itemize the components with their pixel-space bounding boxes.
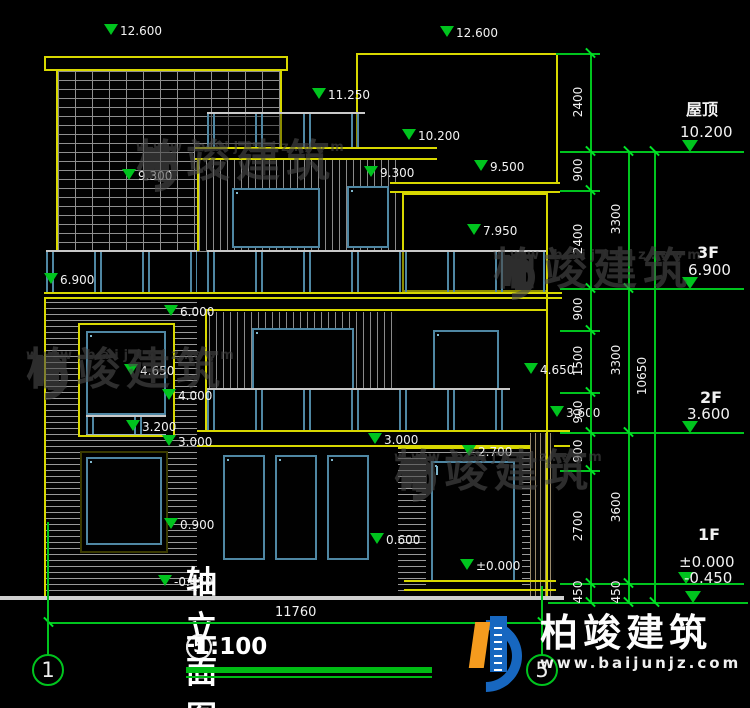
logo-brand-name: 柏竣建筑 (540, 612, 741, 654)
floor-level-triangle-icon (682, 140, 698, 152)
window-handle (90, 336, 92, 337)
dimension-text: 2400 (571, 224, 585, 255)
dimension-text: 450 (609, 581, 623, 604)
title-text: 轴立面图 (186, 557, 218, 708)
right-column (530, 433, 554, 597)
dimension-text: 2700 (571, 511, 585, 542)
window-sash (90, 335, 92, 337)
elevation-value: 3.600 (566, 406, 600, 420)
dimension-tick (623, 578, 634, 589)
1f-middle-window (327, 455, 369, 560)
2f-balcony-railing (207, 388, 510, 431)
dimension-tick (649, 597, 660, 608)
dimension-text: 3600 (609, 492, 623, 523)
floor-level-triangle-icon (678, 572, 694, 584)
floor-level-label: 2F (700, 388, 722, 407)
dimension-tick (585, 185, 596, 196)
floor-slab-3600 (197, 430, 570, 447)
floor-level-value: -0.450 (684, 569, 732, 587)
dimension-text: 3300 (609, 345, 623, 376)
window-panel (227, 459, 229, 461)
1f-middle-window (275, 455, 317, 560)
axis-bubble: 1 (32, 654, 64, 686)
2f-balcony-door (252, 328, 354, 390)
dimension-tick (623, 427, 634, 438)
dimension-text: 900 (571, 298, 585, 321)
dimension-chain-line (590, 53, 592, 602)
window-panel (331, 459, 333, 461)
level-triangle-icon (104, 24, 118, 35)
floor-level-label: 屋顶 (686, 96, 718, 120)
window-handle (437, 335, 439, 336)
dimension-text: 900 (571, 401, 585, 424)
floor-level-triangle-icon (685, 591, 701, 603)
floor-slab-6900 (44, 292, 562, 299)
extension-line (548, 602, 748, 604)
extension-line (560, 330, 600, 332)
extension-line (560, 190, 600, 192)
ground-line (0, 596, 564, 600)
casement-mark (237, 193, 238, 194)
3f-window-single (347, 186, 389, 248)
floor-level-value: 6.900 (688, 261, 731, 279)
dimension-tick (649, 146, 660, 157)
elevation-value: 12.600 (456, 26, 498, 40)
floor-level-label: 1F (698, 525, 720, 544)
2f-left-window (86, 331, 166, 415)
window-sash (351, 190, 353, 192)
1f-middle-window (223, 455, 265, 560)
floor-level-value: ±0.000 (679, 553, 735, 571)
dimension-text: 2400 (571, 87, 585, 118)
dimension-tick (585, 465, 596, 476)
window-panel (279, 459, 281, 461)
dimension-text: 450 (571, 581, 585, 604)
floor-level-value: 10.200 (680, 123, 733, 141)
extension-line (560, 583, 744, 585)
building-right-edge (546, 193, 548, 597)
dimension-text: 1500 (571, 346, 585, 377)
dimension-tick (585, 578, 596, 589)
window-sash (437, 334, 439, 336)
dimension-tick (585, 387, 596, 398)
window-sash (236, 192, 238, 194)
title-underline-thick (186, 667, 432, 673)
dimension-tick (623, 597, 634, 608)
ground-dimension-text: 11760 (275, 605, 316, 620)
3f-balcony-railing-left (46, 250, 197, 293)
door-panel (436, 466, 438, 468)
balcony-railing-11250 (207, 112, 365, 148)
window-handle (90, 462, 92, 463)
dimension-tick (585, 597, 596, 608)
level-triangle-icon (312, 88, 326, 99)
extension-line (556, 53, 600, 55)
casement-mark (352, 191, 353, 192)
dimension-tick (585, 146, 596, 157)
dimension-chain-line (654, 151, 656, 602)
dimension-text: 900 (571, 159, 585, 182)
roof-slab-10200 (195, 147, 437, 160)
casement-mark (237, 193, 238, 194)
3f-balcony-railing-middle (207, 250, 548, 293)
dimension-tick (585, 283, 596, 294)
extension-line (560, 288, 744, 290)
door-leaf (435, 465, 437, 467)
dimension-tick (585, 325, 596, 336)
dimension-text: 3300 (609, 204, 623, 235)
dimension-tick (623, 283, 634, 294)
entrance-double-door (431, 461, 515, 582)
dimension-tick (623, 146, 634, 157)
floor-level-triangle-icon (682, 421, 698, 433)
level-triangle-icon (370, 533, 384, 544)
logo-building-bar (490, 616, 507, 672)
extension-line (560, 151, 744, 153)
logo-arc (435, 605, 537, 707)
dimension-tick (43, 617, 54, 628)
floor-level-triangle-icon (682, 277, 698, 289)
logo-swoosh-icon (448, 612, 532, 700)
parapet-slab-9500 (390, 182, 560, 193)
entrance-steps (404, 580, 556, 597)
level-triangle-icon (440, 26, 454, 37)
elevation-value: 12.600 (120, 24, 162, 38)
dimension-text: 900 (571, 440, 585, 463)
window-sash (90, 461, 92, 463)
title-scale: 1:100 (194, 634, 267, 660)
extension-line (560, 432, 744, 434)
step-edge (404, 589, 556, 591)
title-underline-thin (186, 676, 432, 678)
floor-level-label: 3F (697, 243, 719, 262)
left-tower-roof-slab (44, 56, 288, 71)
extension-line (560, 470, 600, 472)
door-sash (256, 332, 258, 334)
brand-logo: 柏竣建筑 www.baijunjz.com (448, 612, 741, 700)
logo-brand-url: www.baijunjz.com (540, 654, 741, 672)
dimension-chain-line (628, 151, 630, 602)
2f-left-window-railing (86, 415, 166, 435)
extension-line (560, 392, 600, 394)
dimension-text: 10650 (635, 357, 649, 395)
3f-window-group (232, 188, 320, 248)
2f-right-window (433, 330, 499, 390)
elevation-drawing: 1 - 5 轴立面图 1:100 柏竣建筑 www.baijunjz.com 1… (0, 0, 750, 708)
dimension-tick (585, 48, 596, 59)
dimension-tick (585, 427, 596, 438)
floor-level-value: 3.600 (687, 405, 730, 423)
level-triangle-icon (550, 406, 564, 417)
1f-left-window (86, 457, 162, 545)
